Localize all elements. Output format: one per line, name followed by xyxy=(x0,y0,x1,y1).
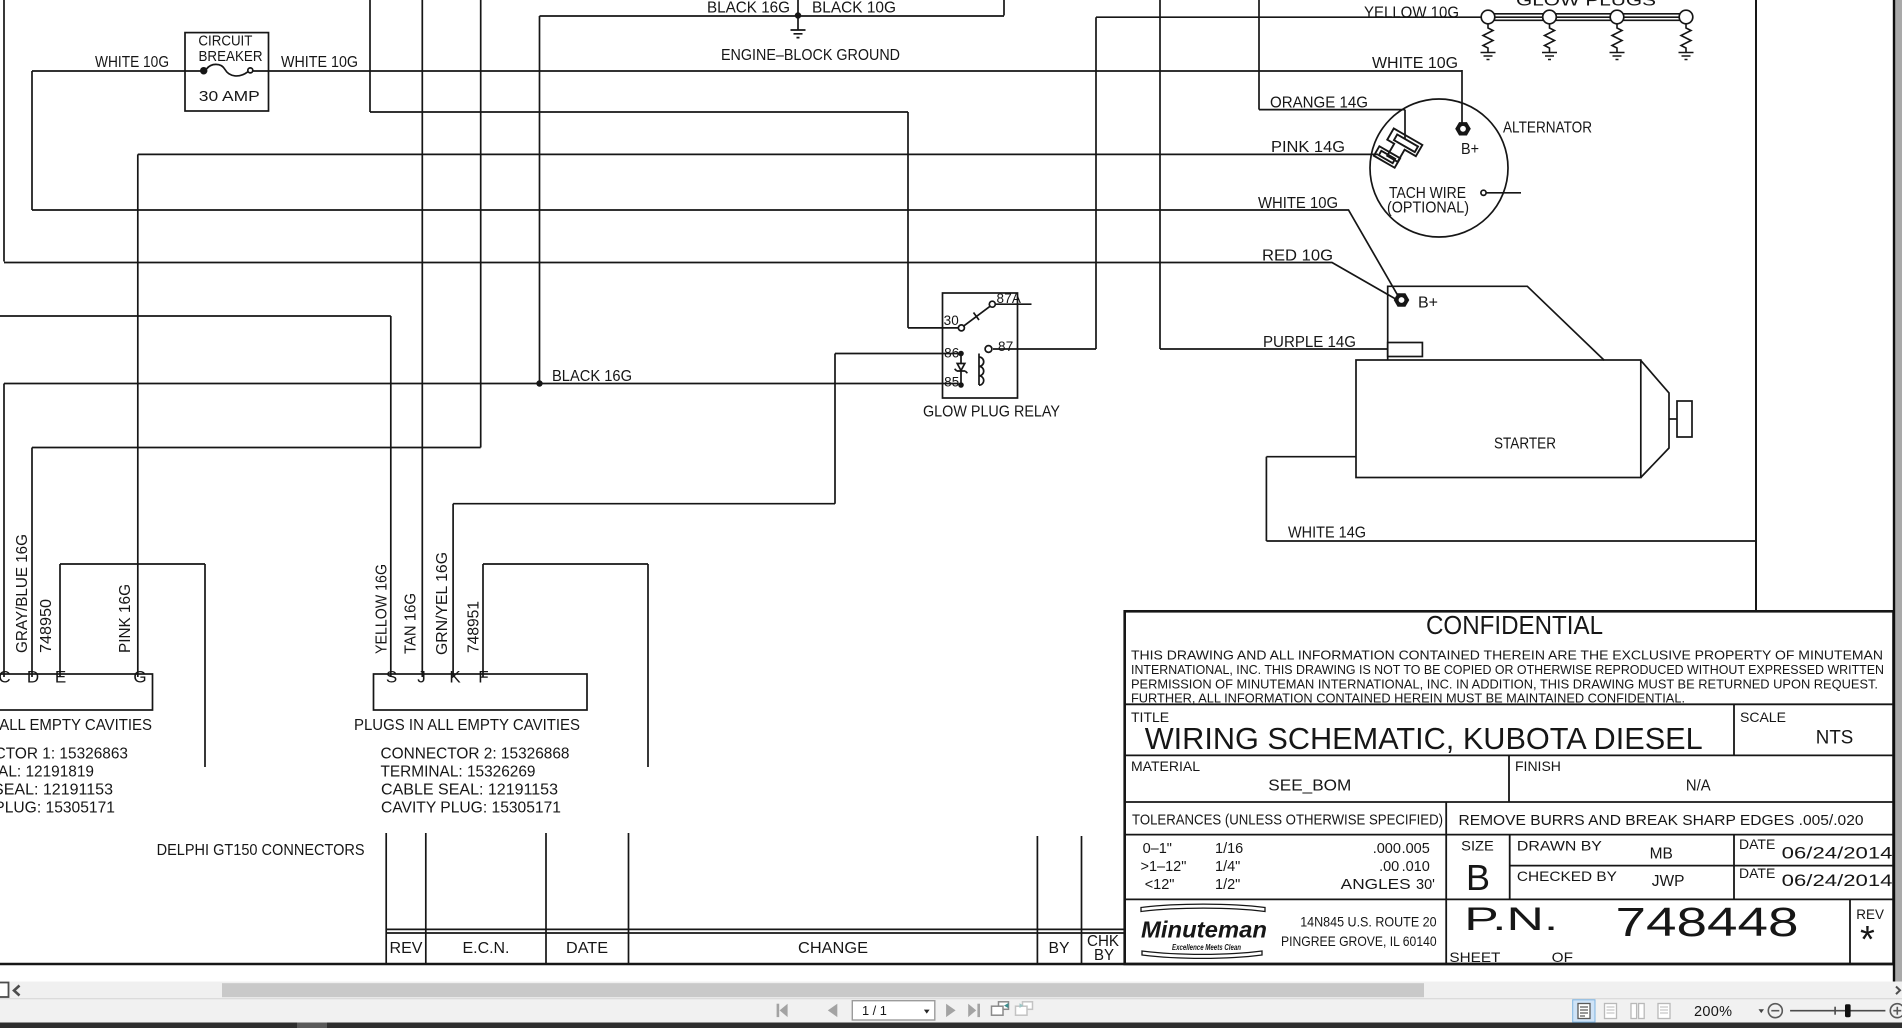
svg-text:B: B xyxy=(1466,857,1490,898)
svg-text:0–1": 0–1" xyxy=(1143,841,1172,857)
svg-text:.005: .005 xyxy=(1402,841,1430,857)
svg-text:YELLOW 16G: YELLOW 16G xyxy=(374,564,391,654)
svg-text:WIRING SCHEMATIC, KUBOTA DI: WIRING SCHEMATIC, KUBOTA DIESEL xyxy=(1145,721,1703,756)
svg-text:DRAWN BY: DRAWN BY xyxy=(1517,838,1603,854)
svg-text:PINK 16G: PINK 16G xyxy=(117,584,134,653)
svg-text:ENGINE–BLOCK GROUND: ENGINE–BLOCK GROUND xyxy=(721,47,900,64)
svg-text:P.N.: P.N. xyxy=(1464,901,1558,937)
svg-text:ANGLES: ANGLES xyxy=(1341,877,1411,893)
svg-text:86: 86 xyxy=(944,346,959,361)
svg-text:B+: B+ xyxy=(1461,141,1479,158)
svg-text:STARTER: STARTER xyxy=(1494,436,1556,453)
svg-text:MATERIAL: MATERIAL xyxy=(1131,758,1200,774)
svg-text:INTERNATIONAL, INC. THIS DR: INTERNATIONAL, INC. THIS DRAWING IS NOT … xyxy=(1131,662,1884,677)
svg-text:PURPLE 14G: PURPLE 14G xyxy=(1263,334,1356,351)
svg-text:ORANGE 14G: ORANGE 14G xyxy=(1270,95,1368,112)
svg-text:06/24/2014: 06/24/2014 xyxy=(1782,872,1893,890)
svg-text:CONFIDENTIAL: CONFIDENTIAL xyxy=(1426,610,1603,640)
svg-text:Minuteman: Minuteman xyxy=(1141,917,1267,943)
svg-text:87: 87 xyxy=(998,339,1013,354)
svg-text:G: G xyxy=(133,668,146,687)
svg-text:CIRCUIT: CIRCUIT xyxy=(198,33,252,50)
svg-text:1 / 1: 1 / 1 xyxy=(862,1003,887,1018)
svg-text:30': 30' xyxy=(1416,877,1435,893)
svg-text:85: 85 xyxy=(944,375,959,390)
svg-text:BLACK 16G: BLACK 16G xyxy=(707,0,790,17)
svg-text:WHITE 10G: WHITE 10G xyxy=(281,54,358,71)
svg-text:(OPTIONAL): (OPTIONAL) xyxy=(1387,200,1469,217)
svg-text:JWP: JWP xyxy=(1652,873,1685,890)
svg-text:.010: .010 xyxy=(1402,859,1430,875)
svg-text:FURTHER, ALL INFORMATION CO: FURTHER, ALL INFORMATION CONTAINED HEREI… xyxy=(1131,691,1685,706)
svg-text:REV: REV xyxy=(390,940,423,957)
svg-text:D: D xyxy=(27,668,39,687)
svg-text:N/A: N/A xyxy=(1686,778,1711,795)
svg-text:TOLERANCES (UNLESS OTHERWISE: TOLERANCES (UNLESS OTHERWISE SPECIFIED) xyxy=(1132,813,1443,829)
svg-text:87A: 87A xyxy=(997,291,1022,306)
svg-text:TERMINAL: 15326269: TERMINAL: 15326269 xyxy=(381,764,536,781)
svg-text:SIZE: SIZE xyxy=(1461,838,1494,854)
svg-text:REMOVE BURRS AND BREAK SHA: REMOVE BURRS AND BREAK SHARP EDGES .005/… xyxy=(1459,813,1864,829)
svg-text:K: K xyxy=(449,668,461,687)
svg-text:YELLOW 10G: YELLOW 10G xyxy=(1364,5,1459,22)
svg-text:PERMISSION OF MINUTEMAN INT: PERMISSION OF MINUTEMAN INTERNATIONAL, I… xyxy=(1131,677,1878,692)
svg-text:SHEET: SHEET xyxy=(1449,949,1500,965)
svg-text:THIS DRAWING AND ALL INFOR: THIS DRAWING AND ALL INFORMATION CONTAIN… xyxy=(1131,648,1883,663)
svg-text:1/16: 1/16 xyxy=(1215,841,1243,857)
svg-text:BLACK 10G: BLACK 10G xyxy=(812,0,896,17)
svg-text:F: F xyxy=(478,668,488,687)
svg-text:TERMINAL: 12191819: TERMINAL: 12191819 xyxy=(0,764,94,781)
svg-text:B+: B+ xyxy=(1418,295,1438,312)
svg-text:CAVITY PLUG: 15305171: CAVITY PLUG: 15305171 xyxy=(0,800,115,817)
svg-text:CHANGE: CHANGE xyxy=(798,940,868,957)
svg-text:DATE: DATE xyxy=(566,940,608,957)
svg-text:E: E xyxy=(55,668,66,687)
svg-text:GLOW PLUGS: GLOW PLUGS xyxy=(1516,0,1656,10)
svg-text:PINGREE GROVE, IL 60140: PINGREE GROVE, IL 60140 xyxy=(1281,934,1437,949)
svg-text:GRN/YEL 16G: GRN/YEL 16G xyxy=(434,552,451,655)
svg-text:748950: 748950 xyxy=(38,599,55,653)
svg-text:OF: OF xyxy=(1552,949,1573,965)
svg-text:748951: 748951 xyxy=(465,601,482,653)
svg-text:SEE_BOM: SEE_BOM xyxy=(1268,778,1351,795)
svg-text:DELPHI GT150 CONNECTORS: DELPHI GT150 CONNECTORS xyxy=(157,842,365,859)
svg-text:WHITE 10G: WHITE 10G xyxy=(1372,55,1458,72)
svg-text:30 AMP: 30 AMP xyxy=(199,88,260,105)
svg-text:WHITE 14G: WHITE 14G xyxy=(1288,525,1366,542)
svg-text:PLUGS IN ALL EMPTY CAVITIE: PLUGS IN ALL EMPTY CAVITIES xyxy=(354,717,580,734)
svg-text:Excellence Meets Clean: Excellence Meets Clean xyxy=(1172,943,1241,952)
svg-text:GRAY/BLUE 16G: GRAY/BLUE 16G xyxy=(14,534,31,653)
svg-text:.00: .00 xyxy=(1379,859,1399,875)
svg-text:1/4": 1/4" xyxy=(1215,859,1240,875)
svg-text:06/24/2014: 06/24/2014 xyxy=(1782,844,1893,862)
svg-text:RED 10G: RED 10G xyxy=(1262,248,1333,265)
svg-text:.000: .000 xyxy=(1373,841,1401,857)
svg-text:S: S xyxy=(386,668,397,687)
svg-text:CAVITY PLUG: 15305171: CAVITY PLUG: 15305171 xyxy=(381,800,561,817)
svg-text:NTS: NTS xyxy=(1816,728,1854,749)
svg-text:BY: BY xyxy=(1094,947,1114,964)
svg-text:DATE: DATE xyxy=(1739,836,1775,852)
svg-text:J: J xyxy=(417,668,426,687)
svg-text:PLUGS IN ALL EMPTY CAVITIE: PLUGS IN ALL EMPTY CAVITIES xyxy=(0,717,152,734)
svg-text:C: C xyxy=(0,668,11,687)
svg-text:SCALE: SCALE xyxy=(1740,709,1786,725)
svg-text:BLACK 16G: BLACK 16G xyxy=(552,368,632,385)
svg-text:ALTERNATOR: ALTERNATOR xyxy=(1503,120,1592,137)
svg-text:WHITE 10G: WHITE 10G xyxy=(1258,195,1338,212)
svg-text:200%: 200% xyxy=(1694,1004,1732,1020)
svg-text:E.C.N.: E.C.N. xyxy=(463,940,510,957)
svg-text:CONNECTOR 2: 15326868: CONNECTOR 2: 15326868 xyxy=(381,746,570,763)
svg-text:DATE: DATE xyxy=(1739,865,1775,881)
svg-text:CHECKED BY: CHECKED BY xyxy=(1517,868,1618,884)
svg-text:>1–12": >1–12" xyxy=(1141,859,1187,875)
svg-text:30: 30 xyxy=(944,313,959,328)
svg-text:TAN 16G: TAN 16G xyxy=(403,593,420,654)
svg-text:MB: MB xyxy=(1650,845,1673,862)
svg-text:14N845 U.S. ROUTE 20: 14N845 U.S. ROUTE 20 xyxy=(1300,915,1437,930)
svg-text:WHITE 10G: WHITE 10G xyxy=(95,54,169,71)
svg-text:FINISH: FINISH xyxy=(1515,758,1561,774)
svg-text:BY: BY xyxy=(1049,940,1070,957)
svg-text:1/2": 1/2" xyxy=(1215,877,1240,893)
svg-text:748448: 748448 xyxy=(1616,899,1799,945)
svg-text:<12": <12" xyxy=(1145,877,1175,893)
svg-text:CABLE SEAL: 12191153: CABLE SEAL: 12191153 xyxy=(381,782,558,799)
svg-text:BREAKER: BREAKER xyxy=(199,48,263,65)
svg-text:PINK 14G: PINK 14G xyxy=(1271,139,1345,156)
svg-text:*: * xyxy=(1860,919,1875,961)
svg-text:CONNECTOR 1: 15326863: CONNECTOR 1: 15326863 xyxy=(0,746,128,763)
svg-text:CABLE SEAL: 12191153: CABLE SEAL: 12191153 xyxy=(0,782,113,799)
svg-text:GLOW PLUG RELAY: GLOW PLUG RELAY xyxy=(923,404,1060,421)
